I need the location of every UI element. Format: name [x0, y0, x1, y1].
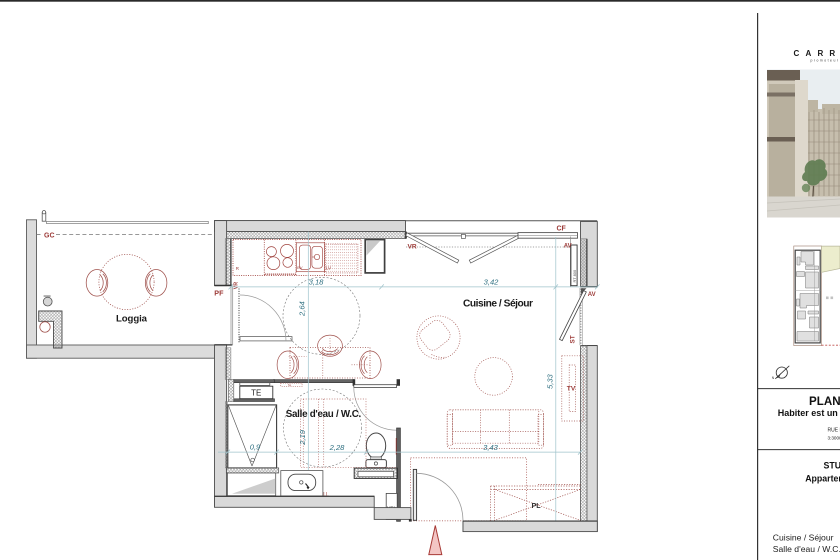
svg-text:SL: SL: [288, 383, 292, 387]
svg-text:3:3000 TOULOUSE: 3:3000 TOULOUSE: [828, 436, 840, 441]
svg-text:Loggia: Loggia: [116, 314, 148, 325]
svg-text:R: R: [236, 266, 239, 271]
svg-text:promoteur: promoteur: [811, 59, 840, 63]
svg-text:Cuisine / Séjour: Cuisine / Séjour: [773, 533, 834, 543]
svg-text:Salle d'eau / W.C.: Salle d'eau / W.C.: [286, 409, 362, 420]
svg-text:TV: TV: [567, 386, 576, 393]
svg-text:VR: VR: [234, 282, 240, 290]
svg-text:3,42: 3,42: [484, 278, 500, 287]
svg-text:3,43: 3,43: [483, 443, 499, 452]
svg-text:AV: AV: [588, 292, 596, 298]
svg-text:VR: VR: [408, 243, 417, 250]
svg-text:RUE DES ARTS: RUE DES ARTS: [828, 428, 840, 434]
svg-text:ST: ST: [569, 335, 576, 343]
svg-text:LV: LV: [326, 265, 332, 270]
svg-text:Cuisine / Séjour: Cuisine / Séjour: [463, 299, 533, 310]
svg-text:CARRÈRE: CARRÈRE: [794, 49, 840, 58]
svg-text:2,64: 2,64: [298, 301, 307, 317]
svg-text:PL: PL: [532, 501, 542, 510]
svg-text:PLAN DE VENTE: PLAN DE VENTE: [809, 395, 840, 408]
svg-text:TE: TE: [251, 389, 261, 398]
svg-text:AV: AV: [564, 244, 572, 250]
svg-text:PF: PF: [214, 289, 224, 298]
svg-text:GC: GC: [44, 232, 55, 239]
svg-text:Appartement A: Appartement A: [805, 473, 840, 483]
svg-text:2,19: 2,19: [298, 429, 307, 446]
svg-text:5,33: 5,33: [546, 373, 555, 389]
svg-text:Salle d'eau / W.C.: Salle d'eau / W.C.: [773, 544, 840, 554]
svg-text:2,28: 2,28: [329, 443, 346, 452]
svg-text:RT 800: RT 800: [572, 269, 577, 282]
svg-text:EV: EV: [297, 265, 303, 270]
svg-text:0,9: 0,9: [250, 442, 261, 451]
svg-text:Habiter est un art: Habiter est un art: [778, 408, 840, 418]
svg-text:CF: CF: [557, 226, 567, 233]
svg-text:3,18: 3,18: [309, 278, 325, 287]
svg-text:STUDIO N°: STUDIO N°: [824, 460, 840, 470]
